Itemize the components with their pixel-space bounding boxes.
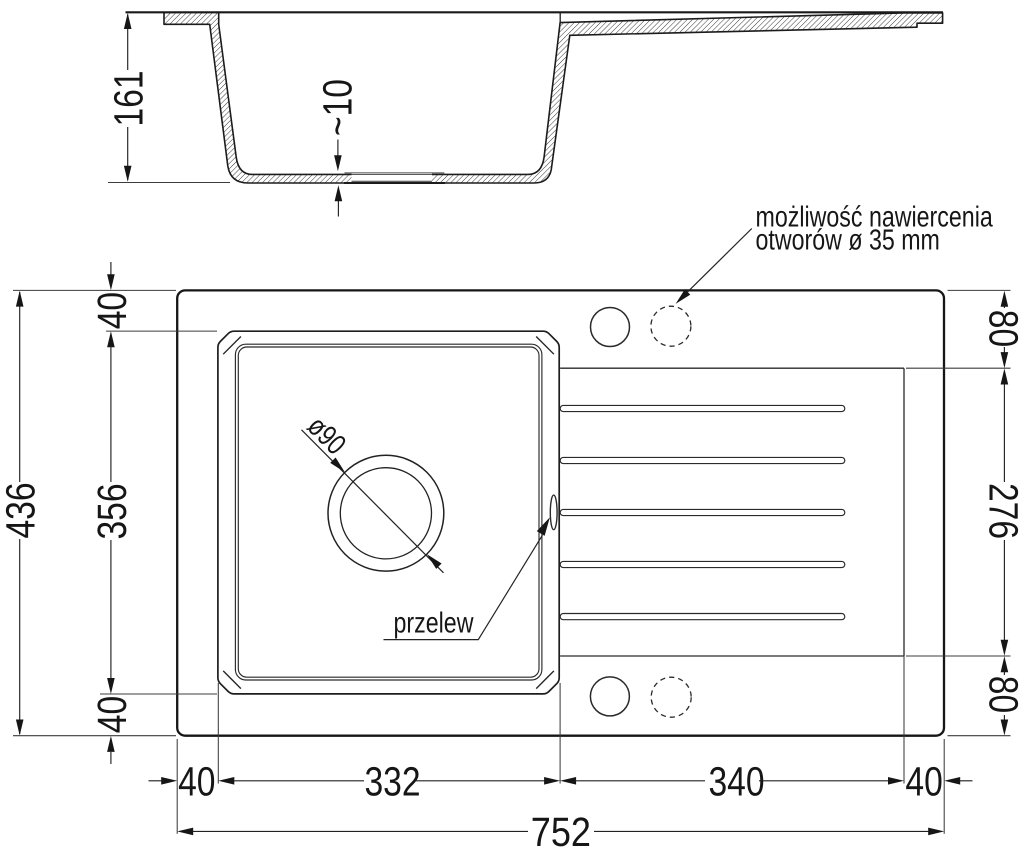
svg-text:przelew: przelew: [394, 607, 475, 639]
svg-text:40: 40: [178, 758, 215, 804]
svg-text:otworów ø 35 mm: otworów ø 35 mm: [756, 225, 940, 257]
svg-text:276: 276: [980, 483, 1024, 539]
svg-text:332: 332: [364, 758, 420, 804]
svg-text:752: 752: [531, 809, 591, 855]
svg-text:356: 356: [89, 483, 135, 539]
svg-text:80: 80: [980, 310, 1024, 347]
svg-text:161: 161: [106, 70, 152, 126]
svg-text:40: 40: [905, 758, 942, 804]
svg-text:40: 40: [89, 696, 135, 733]
svg-text:80: 80: [980, 676, 1024, 713]
svg-text:40: 40: [89, 292, 135, 329]
svg-text:340: 340: [708, 758, 764, 804]
svg-text:436: 436: [0, 482, 44, 538]
svg-text:~10: ~10: [315, 79, 361, 136]
